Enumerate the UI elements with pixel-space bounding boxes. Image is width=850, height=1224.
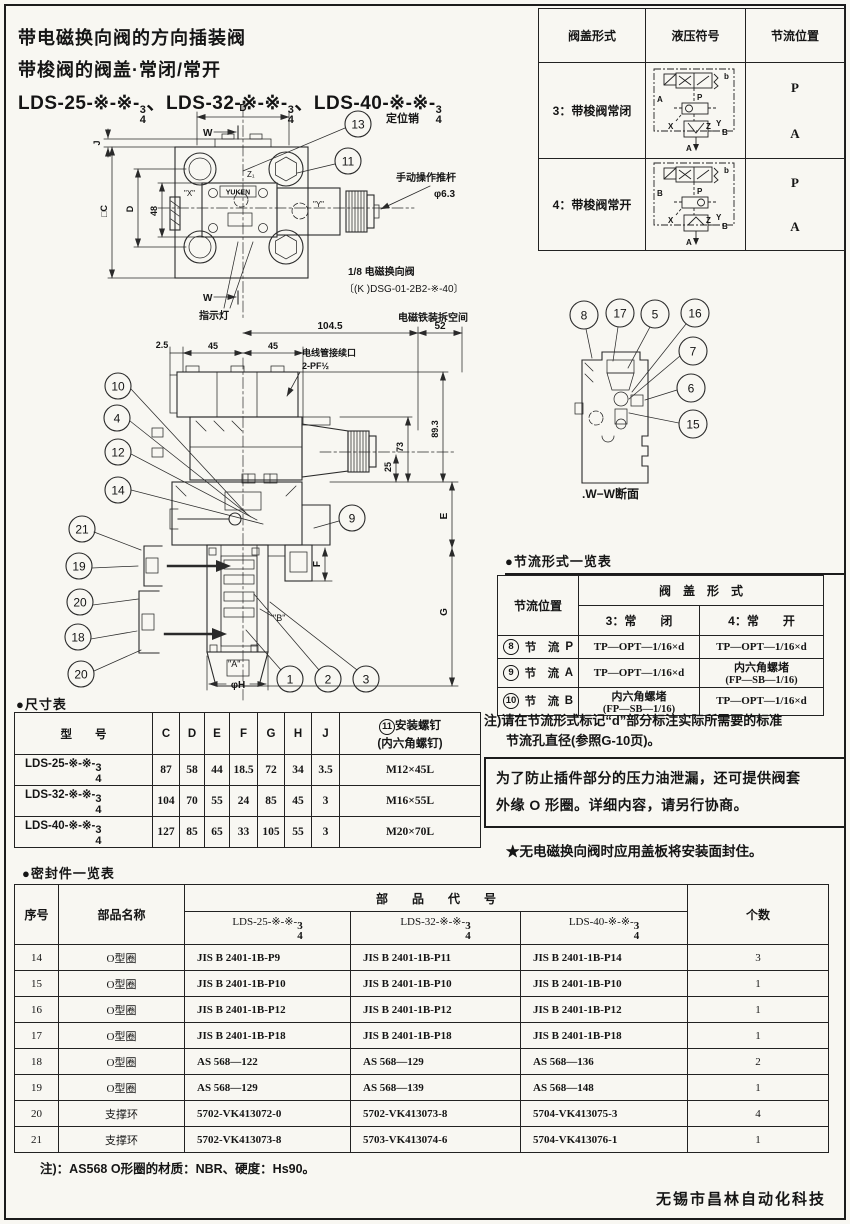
cell: 70 bbox=[180, 786, 205, 817]
cell-no: 17 bbox=[15, 1023, 59, 1049]
seal-parts-table: 序号 部品名称 部 品 代 号 个数 LDS-25-※-※-34 LDS-32-… bbox=[14, 884, 829, 1153]
cell-code: JIS B 2401-1B-P10 bbox=[521, 971, 688, 997]
cell: 127 bbox=[153, 817, 180, 848]
cell-code: AS 568—139 bbox=[351, 1075, 521, 1101]
company-name: 无锡市昌林自动化科技 bbox=[656, 1188, 826, 1209]
cell-code: JIS B 2401-1B-P11 bbox=[351, 945, 521, 971]
col-header-qty: 个数 bbox=[688, 885, 829, 945]
table-row: 19 O型圈 AS 568—129 AS 568—139 AS 568—148 … bbox=[15, 1075, 829, 1101]
cell-qty: 1 bbox=[688, 997, 829, 1023]
sym-label-b2: B bbox=[722, 128, 728, 137]
col-header-part-name: 部品名称 bbox=[59, 885, 185, 945]
cell-code: JIS B 2401-1B-P9 bbox=[185, 945, 351, 971]
cell-code: AS 568—122 bbox=[185, 1049, 351, 1075]
table-row: 15 O型圈 JIS B 2401-1B-P10 JIS B 2401-1B-P… bbox=[15, 971, 829, 997]
sym-label-a2: A bbox=[686, 238, 692, 247]
cell: TP—OPT—1/16×d bbox=[579, 659, 700, 688]
sym-label-y: Y bbox=[716, 213, 722, 222]
col-header-d: D bbox=[180, 713, 205, 755]
pos-label: 节 流 bbox=[525, 665, 560, 681]
model-header-40: LDS-40-※-※-34 bbox=[521, 912, 688, 945]
cell: 33 bbox=[230, 817, 258, 848]
star-note: ★无电磁换向阀时应用盖板将安装面封住。 bbox=[506, 840, 763, 860]
dimension-table: 型 号 C D E F G H J 11安装螺钉 (内六角螺钉) LDS-25-… bbox=[14, 712, 481, 848]
table-row: 型 号 C D E F G H J 11安装螺钉 (内六角螺钉) bbox=[15, 713, 481, 755]
model-header-25: LDS-25-※-※-34 bbox=[185, 912, 351, 945]
cell-name: O型圈 bbox=[59, 1075, 185, 1101]
cell-qty: 1 bbox=[688, 1075, 829, 1101]
pos-letter: P bbox=[565, 641, 573, 653]
throttle-note-line2: 节流孔直径(参照G-10页)。 bbox=[506, 730, 661, 749]
table-row: LDS-32-※-※-34 104 70 55 24 85 45 3 M16×5… bbox=[15, 786, 481, 817]
cell-code: JIS B 2401-1B-P18 bbox=[351, 1023, 521, 1049]
positions-cell: P A bbox=[746, 63, 845, 159]
circled-number: 8 bbox=[503, 639, 519, 655]
pos-letter: B bbox=[565, 695, 573, 707]
col-header-form: 阀盖形式 bbox=[539, 9, 646, 63]
cell: 85 bbox=[180, 817, 205, 848]
cell-name: O型圈 bbox=[59, 997, 185, 1023]
table-row: 20 支撑环 5702-VK413072-0 5702-VK413073-8 5… bbox=[15, 1101, 829, 1127]
hydraulic-symbol-closed: b A P X Z Y B A bbox=[646, 63, 746, 159]
sym-label-b: b bbox=[724, 72, 729, 81]
table-row: 9 节 流 A TP—OPT—1/16×d 内六角螺堵(FP—SB—1/16) bbox=[498, 659, 824, 688]
sym-label-a2: A bbox=[686, 144, 692, 153]
cell: 105 bbox=[258, 817, 285, 848]
cell: 内六角螺堵(FP—SB—1/16) bbox=[700, 659, 824, 688]
table-row: 14 O型圈 JIS B 2401-1B-P9 JIS B 2401-1B-P1… bbox=[15, 945, 829, 971]
cell-no: 14 bbox=[15, 945, 59, 971]
cell-no: 16 bbox=[15, 997, 59, 1023]
col-header-model: 型 号 bbox=[15, 713, 153, 755]
cell: TP—OPT—1/16×d bbox=[579, 636, 700, 659]
span-header-part-code: 部 品 代 号 bbox=[185, 885, 688, 912]
page-title-line1: 带电磁换向阀的方向插装阀 bbox=[18, 24, 442, 50]
cell: 3.5 bbox=[312, 755, 340, 786]
cell-name: O型圈 bbox=[59, 1049, 185, 1075]
circled-number: 11 bbox=[379, 719, 395, 735]
col-header-position: 节流位置 bbox=[746, 9, 845, 63]
throttle-note-line1: 注)请在节流形式标记“d”部分标注实际所需要的标准 bbox=[484, 710, 782, 729]
cell-code: 5702-VK413073-8 bbox=[185, 1127, 351, 1153]
cell: 104 bbox=[153, 786, 180, 817]
cell-code: 5704-VK413076-1 bbox=[521, 1127, 688, 1153]
pos-label: 节 流 bbox=[525, 639, 560, 655]
model-cell: LDS-25-※-※-34 bbox=[15, 755, 153, 786]
table-row: 4：带梭阀常开 b B P X Z Y bbox=[539, 159, 845, 251]
cell: 85 bbox=[258, 786, 285, 817]
cell-name: O型圈 bbox=[59, 945, 185, 971]
table-row: 序号 部品名称 部 品 代 号 个数 bbox=[15, 885, 829, 912]
cell-qty: 1 bbox=[688, 971, 829, 997]
cell: M12×45L bbox=[340, 755, 481, 786]
notice-line1: 为了防止插件部分的压力油泄漏，还可提供阀套 bbox=[496, 765, 834, 792]
cell-code: JIS B 2401-1B-P18 bbox=[521, 1023, 688, 1049]
cell-qty: 2 bbox=[688, 1049, 829, 1075]
table-row: 8 节 流 P TP—OPT—1/16×d TP—OPT—1/16×d bbox=[498, 636, 824, 659]
pos-letter: A bbox=[565, 667, 573, 679]
col-header-f: F bbox=[230, 713, 258, 755]
cell-name: 支撑环 bbox=[59, 1127, 185, 1153]
pos-a: A bbox=[746, 219, 844, 235]
cell: M16×55L bbox=[340, 786, 481, 817]
model-codes: LDS-25-※-※-34、LDS-32-※-※-34、LDS-40-※-※-3… bbox=[18, 88, 442, 126]
throttle-form-table: 节流位置 阀 盖 形 式 3：常 闭 4：常 开 8 节 流 P TP—OPT—… bbox=[497, 575, 824, 716]
notice-line2: 外缘 O 形圈。详细内容，请另行协商。 bbox=[496, 792, 834, 819]
cell: M20×70L bbox=[340, 817, 481, 848]
cell: 72 bbox=[258, 755, 285, 786]
cell-name: 支撑环 bbox=[59, 1101, 185, 1127]
throttle-table-title: ●节流形式一览表 bbox=[505, 551, 845, 575]
col-header-c: C bbox=[153, 713, 180, 755]
table-row: 节流位置 阀 盖 形 式 bbox=[498, 576, 824, 606]
cell: 65 bbox=[205, 817, 230, 848]
cell-qty: 3 bbox=[688, 945, 829, 971]
table-row: 3：带梭阀常闭 b A P X Z Y bbox=[539, 63, 845, 159]
table-row: 17 O型圈 JIS B 2401-1B-P18 JIS B 2401-1B-P… bbox=[15, 1023, 829, 1049]
sym-label-x: X bbox=[668, 122, 674, 131]
title-block: 带电磁换向阀的方向插装阀 带梭阀的阀盖·常闭/常开 LDS-25-※-※-34、… bbox=[18, 24, 442, 126]
circled-number: 9 bbox=[503, 665, 519, 681]
cell: 34 bbox=[285, 755, 312, 786]
cell-code: JIS B 2401-1B-P10 bbox=[185, 971, 351, 997]
model-cell: LDS-40-※-※-34 bbox=[15, 817, 153, 848]
cell-qty: 4 bbox=[688, 1101, 829, 1127]
cell-no: 20 bbox=[15, 1101, 59, 1127]
sym-label-z: Z bbox=[706, 216, 711, 225]
span-header-cover-form: 阀 盖 形 式 bbox=[579, 576, 824, 606]
cell-no: 19 bbox=[15, 1075, 59, 1101]
cell-code: JIS B 2401-1B-P12 bbox=[185, 997, 351, 1023]
table-row: LDS-40-※-※-34 127 85 65 33 105 55 3 M20×… bbox=[15, 817, 481, 848]
col-header-symbol: 液压符号 bbox=[646, 9, 746, 63]
sym-label-y: Y bbox=[716, 119, 722, 128]
hydraulic-symbol-open-art: b B P X Z Y B A bbox=[648, 159, 744, 247]
col-header-e: E bbox=[205, 713, 230, 755]
throttle-pos-p: 8 节 流 P bbox=[498, 636, 579, 659]
seal-table-note: 注)：AS568 O形圈的材质：NBR、硬度：Hs90。 bbox=[40, 1158, 315, 1177]
sub-header-open: 4：常 开 bbox=[700, 606, 824, 636]
cell-code: 5703-VK413074-6 bbox=[351, 1127, 521, 1153]
cell-code: 5704-VK413075-3 bbox=[521, 1101, 688, 1127]
seal-table-title: ●密封件一览表 bbox=[22, 863, 115, 882]
pos-p: P bbox=[746, 175, 844, 191]
cell-code: 5702-VK413072-0 bbox=[185, 1101, 351, 1127]
cover-form-4: 4：带梭阀常开 bbox=[539, 159, 646, 251]
cell: 3 bbox=[312, 786, 340, 817]
col-header-h: H bbox=[285, 713, 312, 755]
sym-label-left: A bbox=[657, 95, 663, 104]
pos-label: 节 流 bbox=[525, 693, 560, 709]
cell: 44 bbox=[205, 755, 230, 786]
cell: 55 bbox=[285, 817, 312, 848]
sym-label-p: P bbox=[697, 93, 703, 102]
cell-name: O型圈 bbox=[59, 971, 185, 997]
table-row: 16 O型圈 JIS B 2401-1B-P12 JIS B 2401-1B-P… bbox=[15, 997, 829, 1023]
table-row: 21 支撑环 5702-VK413073-8 5703-VK413074-6 5… bbox=[15, 1127, 829, 1153]
cell-code: AS 568—129 bbox=[351, 1049, 521, 1075]
dim-table-title: ●尺寸表 bbox=[16, 694, 67, 713]
throttle-pos-a: 9 节 流 A bbox=[498, 659, 579, 688]
cell-code: AS 568—148 bbox=[521, 1075, 688, 1101]
cell-code: JIS B 2401-1B-P12 bbox=[351, 997, 521, 1023]
oring-notice-box: 为了防止插件部分的压力油泄漏，还可提供阀套 外缘 O 形圈。详细内容，请另行协商… bbox=[484, 757, 846, 828]
model-header-32: LDS-32-※-※-34 bbox=[351, 912, 521, 945]
sub-header-closed: 3：常 闭 bbox=[579, 606, 700, 636]
cell-code: AS 568—129 bbox=[185, 1075, 351, 1101]
cell: 55 bbox=[205, 786, 230, 817]
sym-label-z: Z bbox=[706, 122, 711, 131]
cell-code: JIS B 2401-1B-P12 bbox=[521, 997, 688, 1023]
col-header-no: 序号 bbox=[15, 885, 59, 945]
cell-no: 18 bbox=[15, 1049, 59, 1075]
sym-label-x: X bbox=[668, 216, 674, 225]
cell: 87 bbox=[153, 755, 180, 786]
cell: TP—OPT—1/16×d bbox=[700, 636, 824, 659]
sym-label-b: b bbox=[724, 166, 729, 175]
pos-p: P bbox=[746, 80, 844, 96]
cell-qty: 1 bbox=[688, 1127, 829, 1153]
col-header-g: G bbox=[258, 713, 285, 755]
page-title-line2: 带梭阀的阀盖·常闭/常开 bbox=[18, 56, 442, 82]
cell-code: JIS B 2401-1B-P18 bbox=[185, 1023, 351, 1049]
cell-code: 5702-VK413073-8 bbox=[351, 1101, 521, 1127]
cell-name: O型圈 bbox=[59, 1023, 185, 1049]
pos-a: A bbox=[746, 126, 844, 142]
positions-cell: P A bbox=[746, 159, 845, 251]
col-header-screw: 11安装螺钉 (内六角螺钉) bbox=[340, 713, 481, 755]
table-row: LDS-25-※-※-34 87 58 44 18.5 72 34 3.5 M1… bbox=[15, 755, 481, 786]
cover-form-3: 3：带梭阀常闭 bbox=[539, 63, 646, 159]
table-row: 18 O型圈 AS 568—122 AS 568—129 AS 568—136 … bbox=[15, 1049, 829, 1075]
cell-no: 21 bbox=[15, 1127, 59, 1153]
cell: 45 bbox=[285, 786, 312, 817]
cell: 58 bbox=[180, 755, 205, 786]
hydraulic-symbol-open: b B P X Z Y B A bbox=[646, 159, 746, 251]
cover-form-table: 阀盖形式 液压符号 节流位置 3：带梭阀常闭 b A P bbox=[538, 8, 845, 251]
table-row: 阀盖形式 液压符号 节流位置 bbox=[539, 9, 845, 63]
hydraulic-symbol-closed-art: b A P X Z Y B A bbox=[648, 65, 744, 153]
circled-number: 10 bbox=[503, 693, 519, 709]
cell-qty: 1 bbox=[688, 1023, 829, 1049]
sym-label-left: B bbox=[657, 189, 663, 198]
cell: 18.5 bbox=[230, 755, 258, 786]
datasheet-page: YUKEN "X" Z₁ "Y" D W W bbox=[0, 0, 850, 1224]
cell-code: AS 568—136 bbox=[521, 1049, 688, 1075]
cell-code: JIS B 2401-1B-P10 bbox=[351, 971, 521, 997]
cell: 3 bbox=[312, 817, 340, 848]
col-header-j: J bbox=[312, 713, 340, 755]
cell-code: JIS B 2401-1B-P14 bbox=[521, 945, 688, 971]
sym-label-p: P bbox=[697, 187, 703, 196]
model-cell: LDS-32-※-※-34 bbox=[15, 786, 153, 817]
col-header-position: 节流位置 bbox=[498, 576, 579, 636]
cell-no: 15 bbox=[15, 971, 59, 997]
cell: 24 bbox=[230, 786, 258, 817]
sym-label-b2: B bbox=[722, 222, 728, 231]
